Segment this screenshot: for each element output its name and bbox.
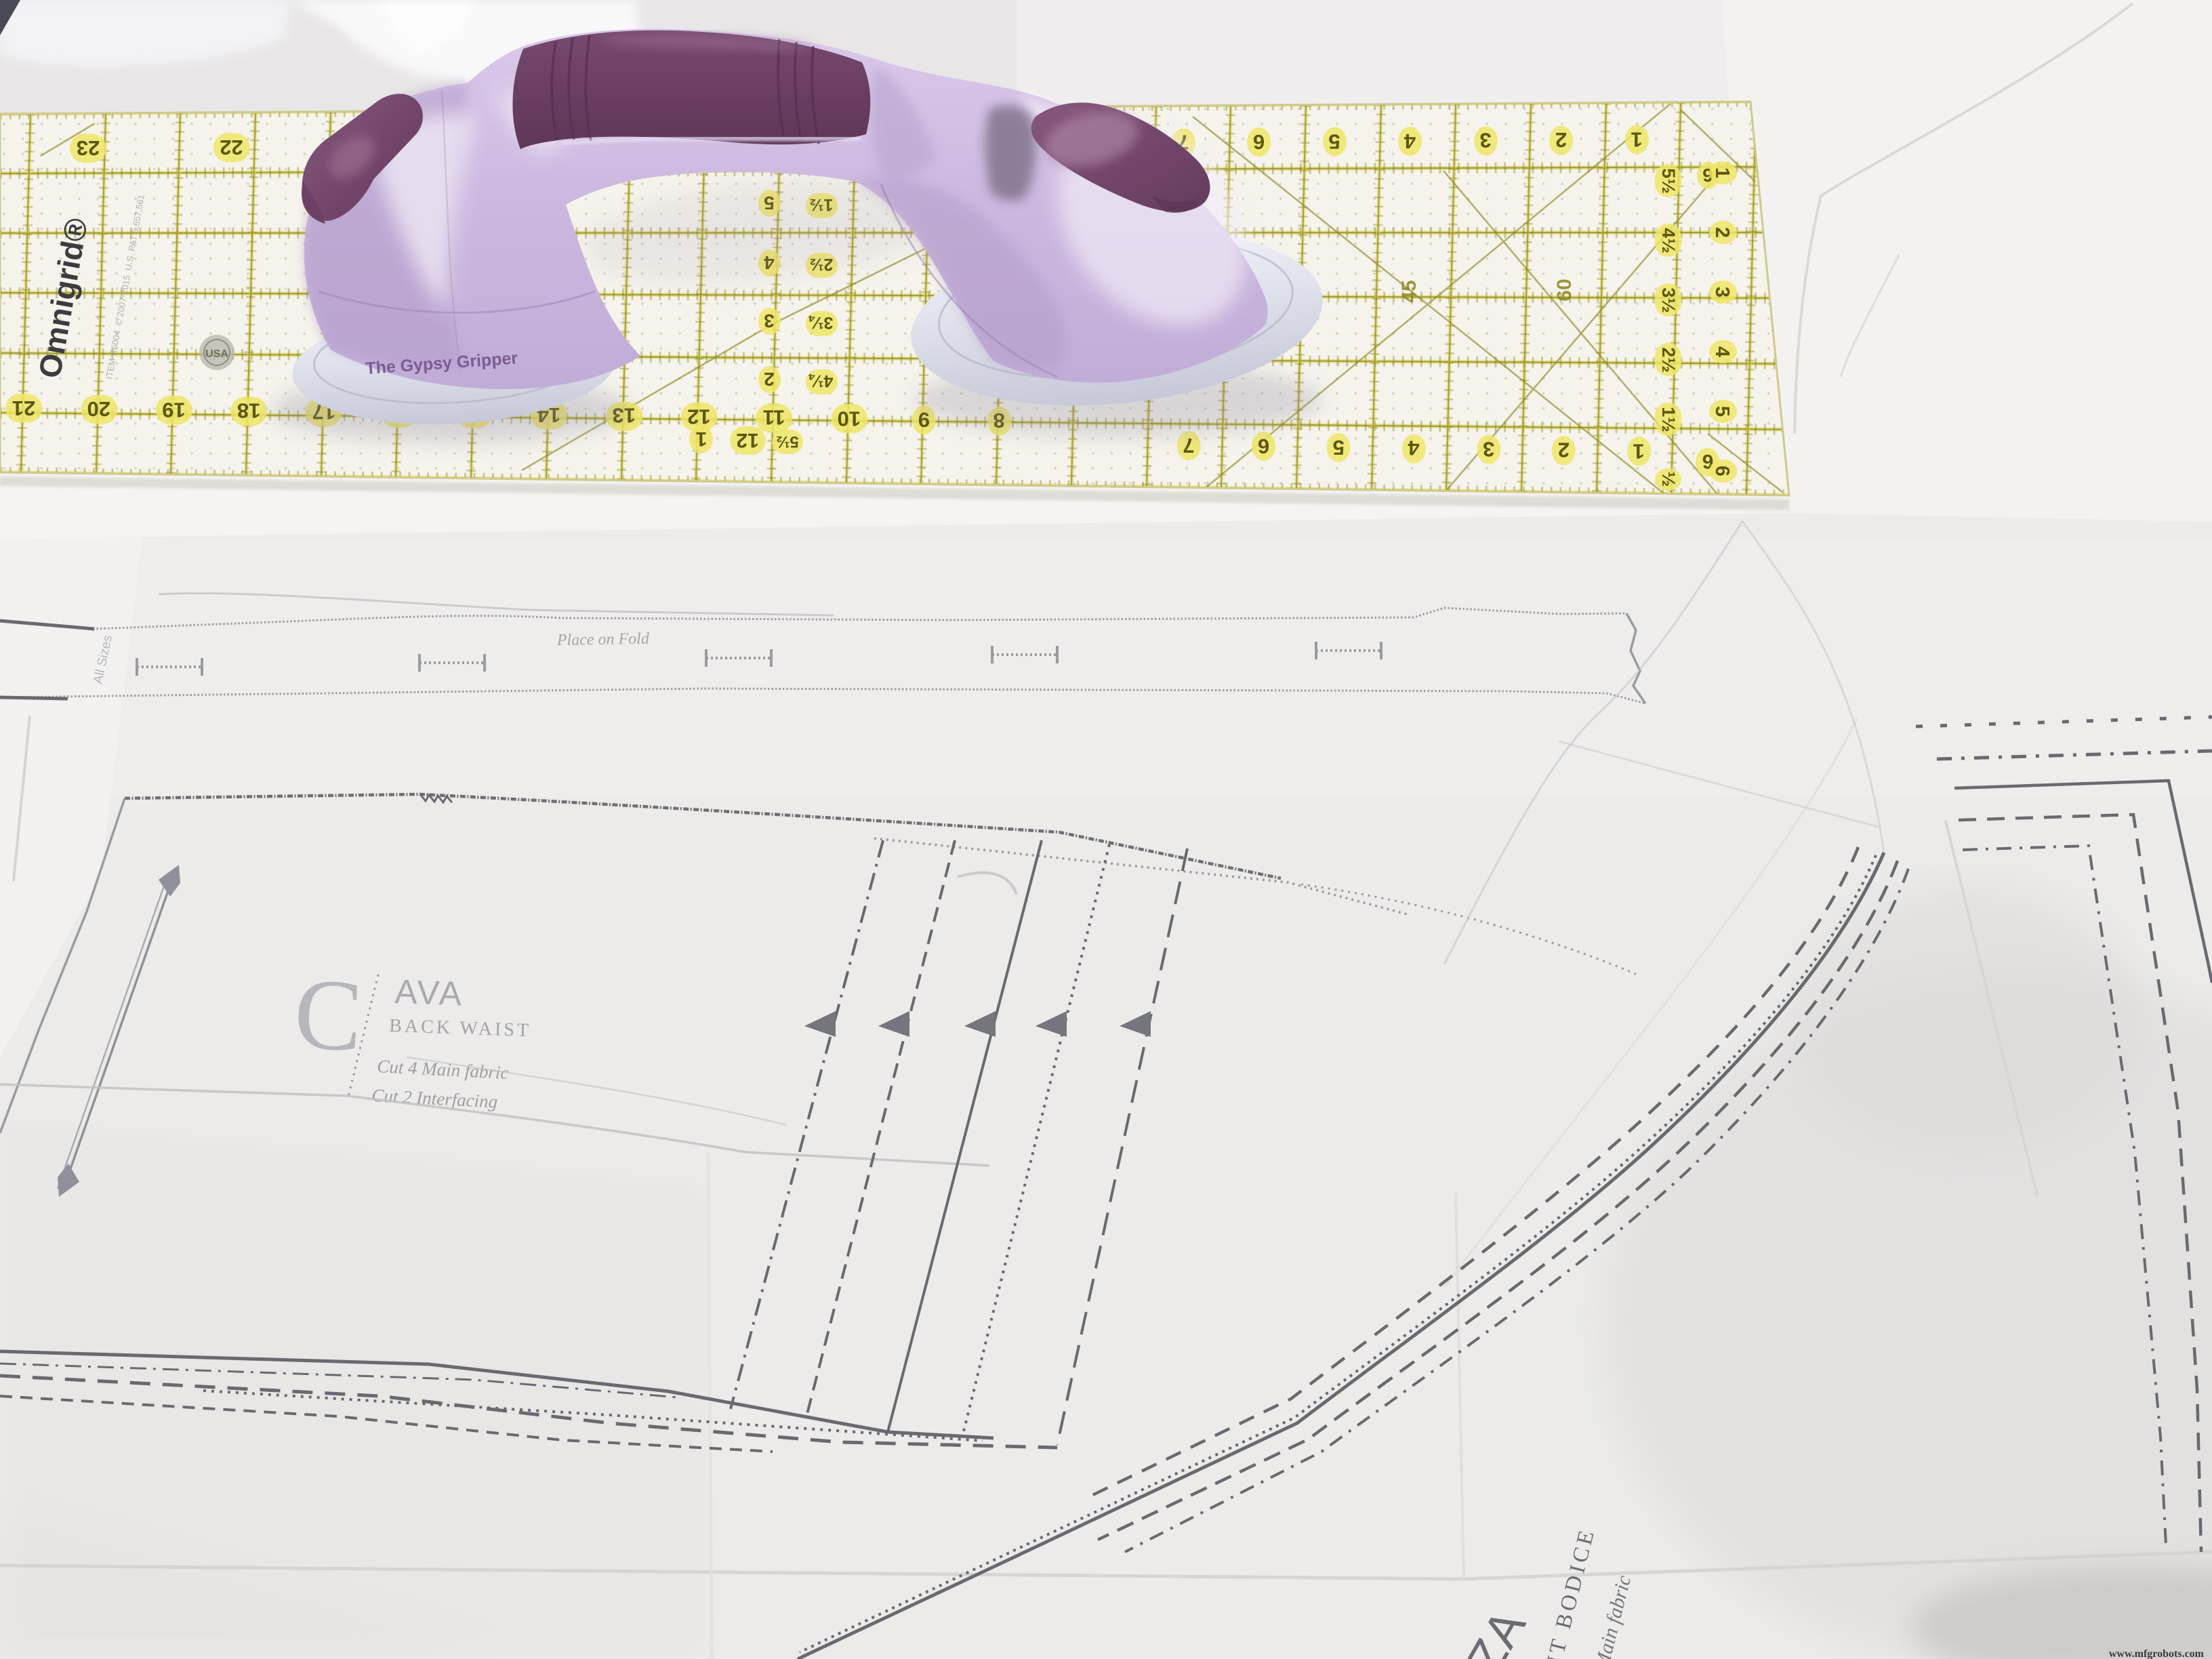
svg-text:C: C <box>291 957 365 1073</box>
svg-text:5½: 5½ <box>776 432 798 451</box>
svg-text:4¼: 4¼ <box>808 371 833 390</box>
svg-text:45: 45 <box>1398 280 1420 302</box>
svg-text:7: 7 <box>1183 434 1194 457</box>
svg-text:2: 2 <box>1558 438 1570 462</box>
svg-text:23: 23 <box>77 136 100 160</box>
svg-text:60: 60 <box>1553 279 1576 301</box>
svg-text:6: 6 <box>1258 434 1269 458</box>
svg-text:3: 3 <box>1711 287 1733 298</box>
svg-text:10: 10 <box>837 407 860 430</box>
svg-text:3½: 3½ <box>1658 287 1679 313</box>
svg-text:1: 1 <box>1631 127 1642 151</box>
svg-text:4: 4 <box>1408 436 1420 460</box>
svg-text:5: 5 <box>1328 130 1340 154</box>
svg-text:3¼: 3¼ <box>808 313 833 332</box>
svg-text:18: 18 <box>237 398 260 422</box>
svg-text:2: 2 <box>764 369 775 390</box>
svg-text:2½: 2½ <box>1658 347 1679 373</box>
svg-text:2: 2 <box>1711 227 1733 238</box>
svg-text:AVA: AVA <box>394 972 465 1013</box>
svg-text:USA: USA <box>205 348 228 360</box>
svg-text:5½: 5½ <box>1658 168 1679 194</box>
svg-text:6: 6 <box>1253 130 1265 154</box>
svg-text:www.mfgrobots.com: www.mfgrobots.com <box>2109 1648 2205 1659</box>
svg-text:22: 22 <box>220 136 243 159</box>
svg-text:3: 3 <box>1483 438 1494 462</box>
svg-text:5: 5 <box>1711 406 1733 417</box>
svg-text:1: 1 <box>696 428 708 450</box>
svg-text:19: 19 <box>162 398 185 422</box>
svg-text:2: 2 <box>1555 128 1567 152</box>
svg-text:4½: 4½ <box>1658 228 1679 253</box>
svg-text:4: 4 <box>1404 129 1416 153</box>
svg-text:11: 11 <box>763 405 785 429</box>
svg-text:1: 1 <box>1633 439 1644 463</box>
svg-text:½: ½ <box>1658 472 1679 487</box>
svg-text:5: 5 <box>1333 436 1345 459</box>
svg-text:12: 12 <box>736 429 758 451</box>
svg-text:3: 3 <box>764 310 775 331</box>
svg-text:6: 6 <box>1711 466 1733 476</box>
svg-text:20: 20 <box>87 397 110 421</box>
svg-text:3: 3 <box>1479 128 1491 152</box>
svg-text:12: 12 <box>687 405 710 429</box>
svg-text:21: 21 <box>12 396 35 420</box>
svg-text:1: 1 <box>1711 167 1733 178</box>
svg-text:4: 4 <box>1711 346 1733 357</box>
svg-text:1½: 1½ <box>1658 407 1679 432</box>
svg-text:Place on Fold: Place on Fold <box>556 630 650 649</box>
